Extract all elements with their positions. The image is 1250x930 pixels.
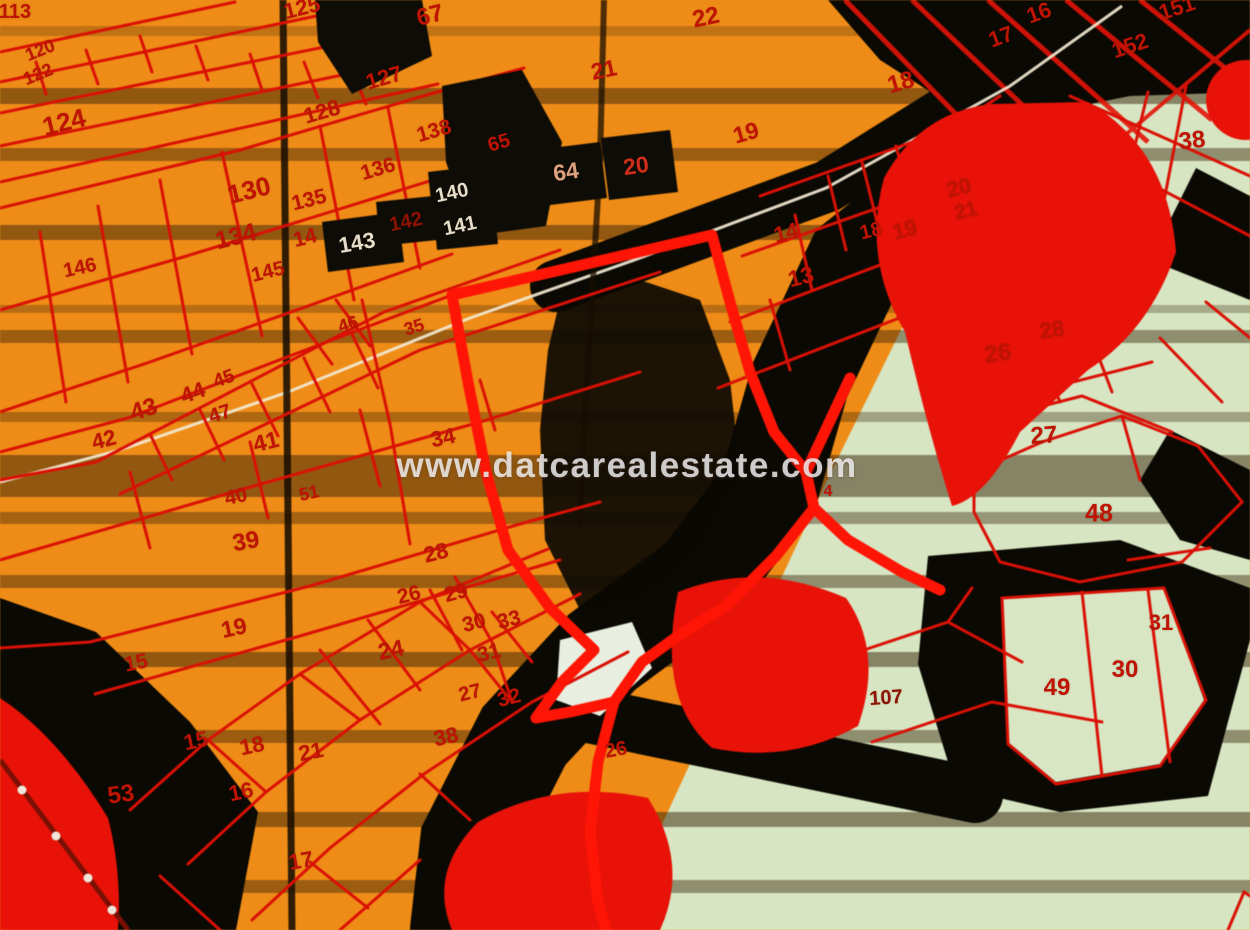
parcel-label-20: 20	[944, 174, 973, 201]
parcel-label-31: 31	[475, 640, 503, 666]
parcel-label-38: 38	[432, 724, 461, 751]
parcel-label-22: 22	[690, 3, 721, 32]
parcel-label-15: 15	[182, 728, 211, 755]
parcel-label-49: 49	[1044, 676, 1071, 700]
parcel-label-145: 145	[249, 258, 286, 285]
parcel-label-53: 53	[106, 781, 136, 808]
parcel-label-151: 151	[1156, 0, 1198, 24]
parcel-label-13: 13	[786, 263, 816, 292]
parcel-label-47: 47	[206, 401, 233, 427]
parcel-label-18: 18	[238, 733, 267, 760]
parcel-label-33: 33	[495, 607, 523, 633]
parcel-label-130: 130	[225, 172, 273, 208]
parcel-label-18: 18	[885, 68, 917, 98]
parcel-label-20: 20	[622, 153, 651, 179]
parcel-label-21: 21	[953, 199, 979, 224]
parcel-label-138: 138	[414, 116, 453, 146]
parcel-label-141: 141	[442, 213, 479, 240]
parcel-label-27: 27	[457, 681, 483, 706]
parcel-label-21: 21	[297, 739, 326, 766]
parcel-label-46: 46	[336, 312, 361, 335]
parcel-label-146: 146	[62, 255, 99, 282]
parcel-label-30: 30	[1112, 658, 1139, 682]
parcel-label-143: 143	[337, 229, 377, 257]
parcel-label-24: 24	[376, 636, 406, 664]
parcel-label-39: 39	[231, 528, 261, 556]
parcel-label-51: 51	[297, 482, 320, 504]
parcel-label-142: 142	[388, 209, 425, 236]
parcel-label-152: 152	[1109, 30, 1151, 62]
parcel-label-19: 19	[731, 118, 762, 147]
parcel-label-65: 65	[486, 130, 513, 155]
parcel-label-19: 19	[890, 216, 919, 243]
parcel-label-29: 29	[442, 580, 470, 606]
parcel-label-41: 41	[251, 428, 281, 457]
parcel-label-124: 124	[40, 104, 88, 140]
parcel-label-17: 17	[287, 848, 315, 874]
parcel-label-107: 107	[869, 687, 904, 709]
parcel-label-18: 18	[858, 219, 884, 244]
parcel-label-120: 120	[23, 36, 58, 64]
parcel-label-26: 26	[395, 582, 423, 608]
parcel-label-127: 127	[363, 62, 404, 93]
cadastral-map-image: 1131201221241461256712712813813665130135…	[0, 0, 1250, 930]
parcel-label-136: 136	[358, 154, 397, 184]
parcel-label-14: 14	[771, 219, 800, 246]
parcel-label-17: 17	[986, 22, 1017, 51]
parcel-label-113: 113	[0, 2, 31, 22]
parcel-label-122: 122	[21, 60, 56, 88]
parcel-label-125: 125	[282, 0, 323, 23]
parcel-label-38: 38	[1177, 128, 1206, 155]
parcel-label-16: 16	[1024, 0, 1055, 28]
parcel-label-48: 48	[1085, 502, 1113, 527]
parcel-label-21: 21	[589, 56, 619, 84]
parcel-label-4: 4	[824, 484, 833, 500]
parcel-label-140: 140	[434, 180, 471, 207]
parcel-label-64: 64	[552, 159, 581, 185]
parcel-label-31: 31	[1149, 612, 1173, 634]
parcel-label-128: 128	[301, 96, 342, 127]
parcel-label-16: 16	[227, 779, 256, 806]
parcel-label-45: 45	[211, 366, 237, 391]
parcel-label-44: 44	[178, 378, 209, 407]
parcel-label-26: 26	[603, 738, 628, 762]
parcel-label-15: 15	[122, 650, 149, 675]
parcel-label-27: 27	[1030, 423, 1058, 449]
parcel-label-28: 28	[1038, 317, 1065, 342]
parcel-label-26: 26	[983, 340, 1013, 367]
parcel-label-134: 134	[213, 220, 260, 254]
parcel-label-30: 30	[460, 610, 488, 636]
parcel-label-28: 28	[421, 539, 450, 566]
watermark: www.datcarealestate.com	[396, 446, 857, 486]
parcel-label-40: 40	[223, 485, 249, 509]
parcel-label-19: 19	[219, 614, 249, 642]
parcel-label-35: 35	[402, 315, 427, 338]
parcel-label-43: 43	[128, 394, 161, 425]
parcel-label-42: 42	[89, 426, 118, 453]
parcel-label-14: 14	[291, 225, 319, 251]
parcel-label-67: 67	[414, 1, 446, 31]
parcel-label-32: 32	[495, 685, 523, 711]
parcel-label-135: 135	[289, 186, 328, 215]
